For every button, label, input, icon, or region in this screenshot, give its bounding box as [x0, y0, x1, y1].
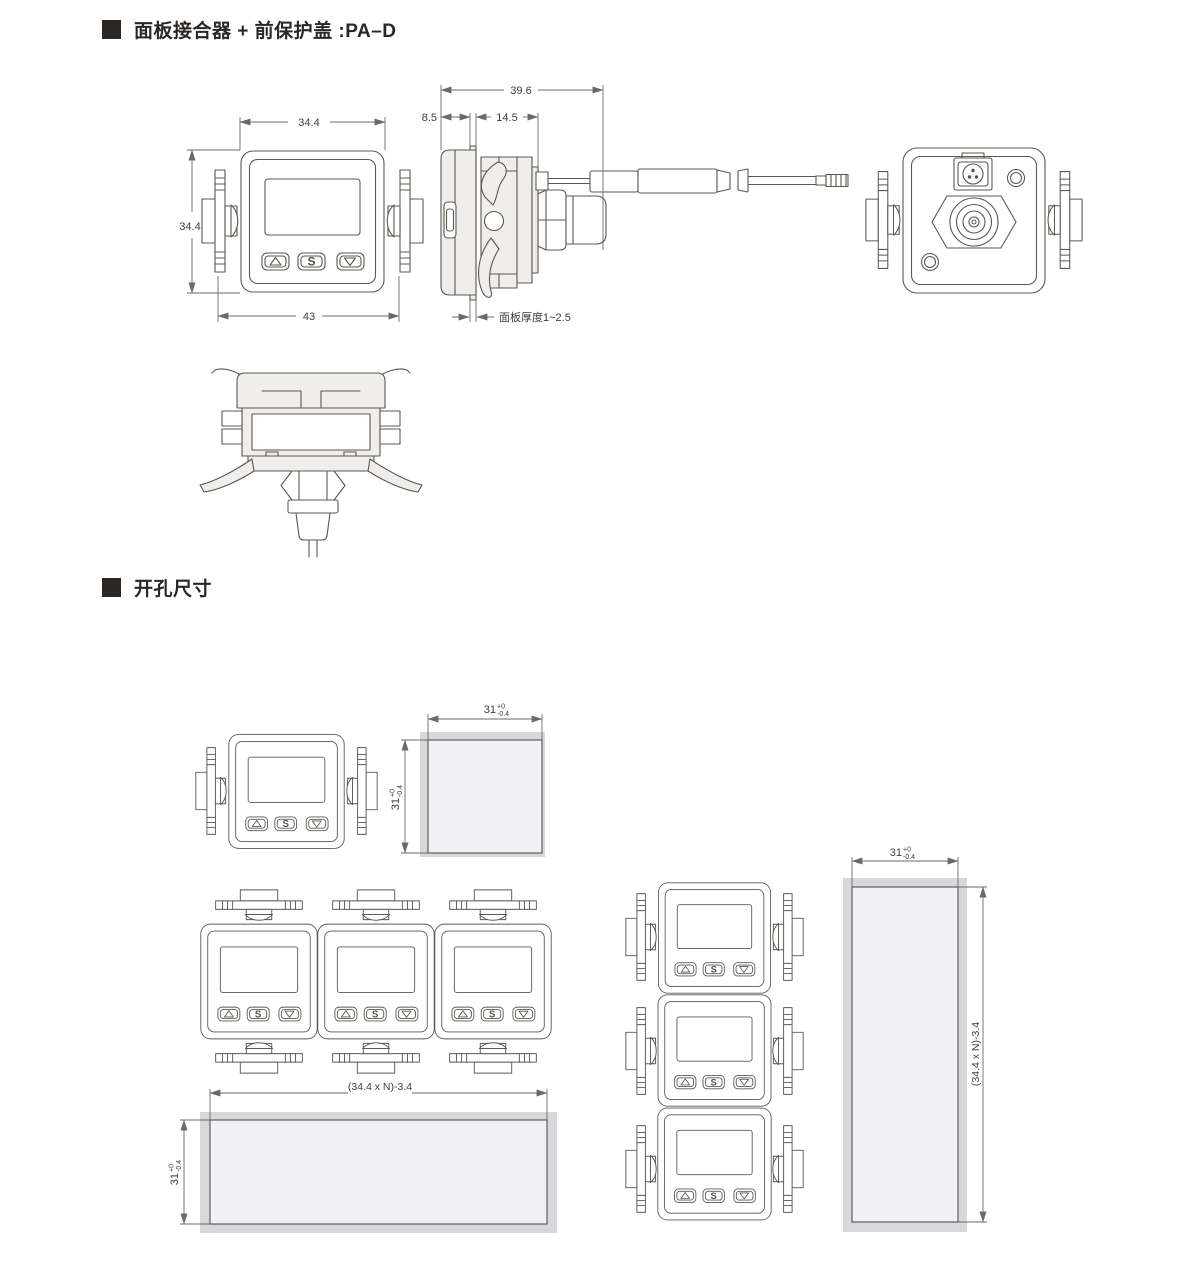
dim-side-adapter-depth: 14.5 — [496, 112, 517, 124]
svg-text:+0: +0 — [497, 704, 505, 711]
pressure-port-rear — [932, 196, 1016, 248]
cutout-hole — [852, 887, 958, 1222]
dim-gang-column-width: 31 +0 -0.4 — [890, 847, 915, 862]
dim-gang-row-height: 31 +0 -0.4 — [169, 1160, 184, 1185]
side-view: 39.6 8.5 14.5 面板厚度1~2.5 — [422, 85, 848, 324]
dim-gang-row-width: (34.4 x N)-3.4 — [348, 1081, 412, 1093]
svg-text:-0.4: -0.4 — [497, 711, 509, 718]
protective-cover-top — [237, 373, 385, 408]
gang-row-view — [201, 890, 551, 1073]
rear-connector — [954, 153, 992, 190]
svg-text:-0.4: -0.4 — [176, 1160, 183, 1172]
dim-cutout-width: 31 +0 -0.4 — [484, 704, 509, 719]
svg-text:+0: +0 — [169, 1164, 176, 1172]
svg-text:-0.4: -0.4 — [903, 854, 915, 861]
single-cutout-diagram: 31 +0 -0.4 31 +0 -0.4 — [390, 704, 546, 858]
pin-mount — [536, 172, 548, 190]
cutout-hole — [210, 1120, 547, 1224]
panel-thickness-note: 面板厚度1~2.5 — [499, 310, 571, 324]
pressure-port-top — [281, 471, 345, 500]
dim-front-width: 34.4 — [298, 117, 319, 129]
top-view — [200, 369, 422, 557]
rear-view — [866, 148, 1082, 293]
svg-text:+0: +0 — [903, 847, 911, 854]
cable-assembly — [548, 169, 848, 193]
dim-gang-column-height: (34.4 x N)-3.4 — [970, 1022, 982, 1086]
gang-row-cutout-diagram: (34.4 x N)-3.4 31 +0 -0.4 — [169, 1081, 558, 1233]
cable-connector-top — [288, 500, 338, 557]
front-view: 34.4 34.4 43 — [179, 117, 423, 323]
dim-cutout-height: 31 +0 -0.4 — [390, 785, 405, 810]
svg-text:-0.4: -0.4 — [397, 785, 404, 797]
clamp-arm — [200, 459, 254, 492]
gang-column-cutout-diagram: 31 +0 -0.4 (34.4 x N)-3.4 — [843, 847, 987, 1233]
dim-front-height: 34.4 — [179, 221, 200, 233]
catalog-page: 面板接合器 + 前保护盖 :PA–D 开孔尺寸 — [0, 0, 1200, 1262]
technical-drawings-svg: S — [0, 0, 1200, 1262]
svg-text:31: 31 — [484, 704, 496, 716]
svg-text:(34.4 x N)-3.4: (34.4 x N)-3.4 — [970, 1022, 982, 1086]
gang-column-view — [626, 883, 803, 1220]
svg-text:31: 31 — [390, 798, 402, 810]
dim-side-front-depth: 8.5 — [422, 112, 437, 124]
dim-front-overall: 43 — [303, 311, 315, 323]
single-unit-view — [196, 735, 377, 849]
svg-text:31: 31 — [169, 1173, 181, 1185]
svg-text:31: 31 — [890, 847, 902, 859]
cutout-hole — [428, 740, 542, 853]
svg-text:+0: +0 — [390, 789, 397, 797]
dim-side-total-depth: 39.6 — [510, 85, 531, 97]
pressure-port-side — [538, 190, 606, 250]
